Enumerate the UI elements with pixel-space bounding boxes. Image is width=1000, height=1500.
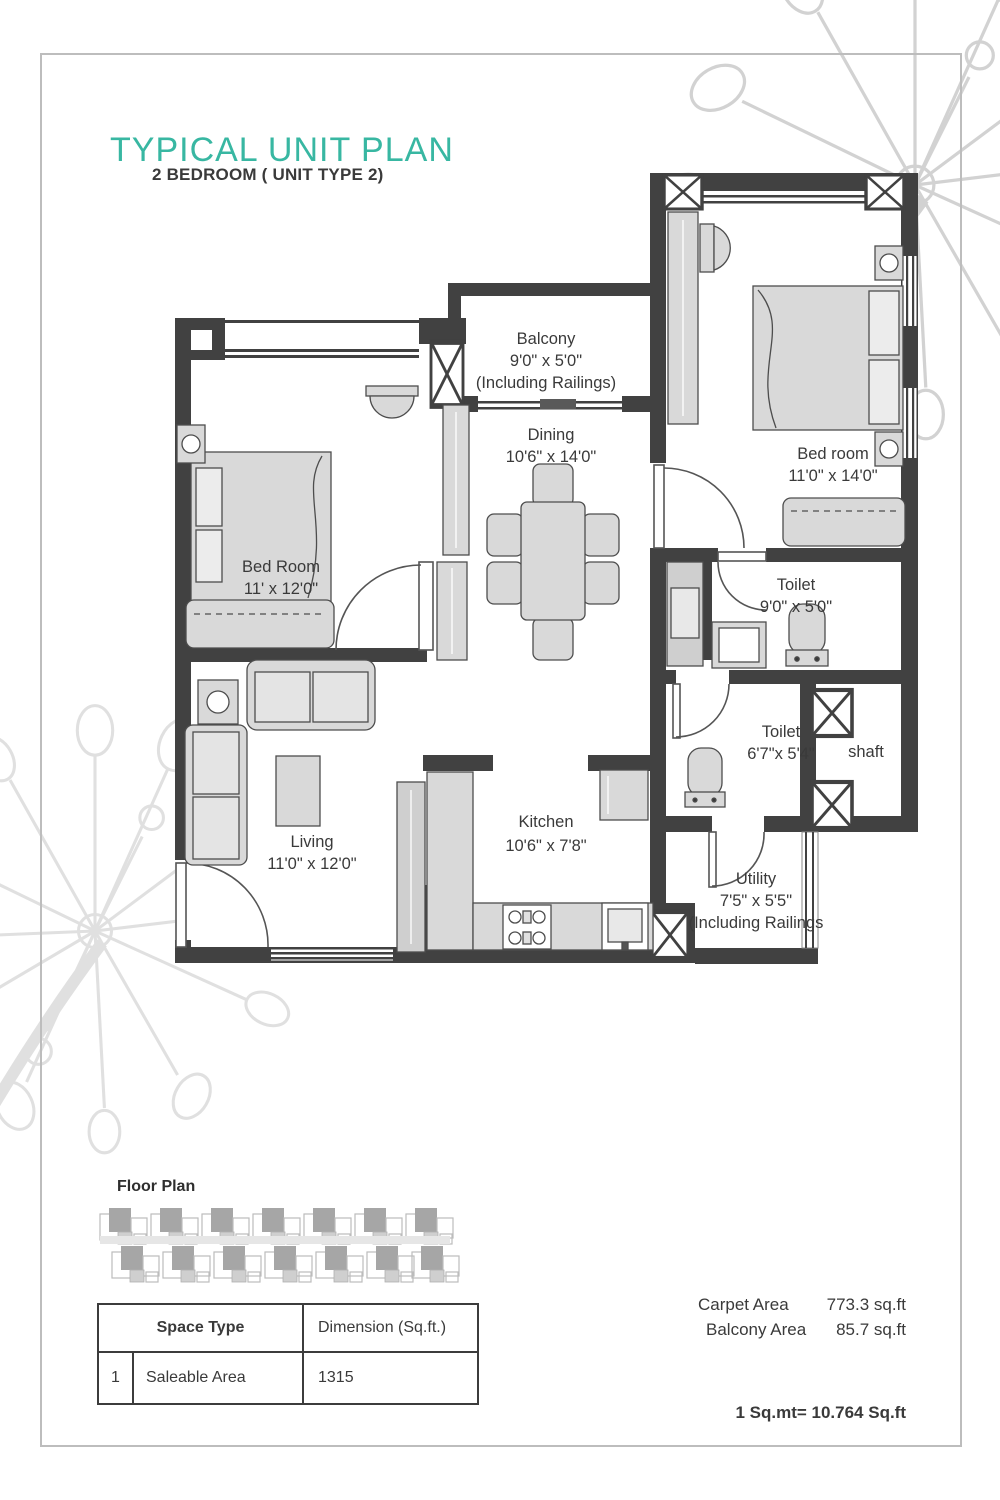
page-subtitle: 2 BEDROOM ( UNIT TYPE 2) [152,165,384,185]
living-label: Living [290,833,333,851]
bedroom-right-label: Bed room [797,445,869,463]
bedroom-left-dim: 11' x 12'0" [244,580,318,598]
area-summary: Carpet Area 773.3 sq.ft Balcony Area 85.… [698,1292,906,1342]
shaft-label: shaft [848,743,884,761]
toilet-mid-label: Toilet [762,723,801,741]
kitchen-label: Kitchen [518,813,573,831]
balcony-label: Balcony [517,330,576,348]
unit-conversion-note: 1 Sq.mt= 10.764 Sq.ft [660,1403,906,1423]
table-cell-dimension: 1315 [303,1352,478,1404]
floor-plan-drawing: Balcony 9'0" x 5'0" (Including Railings)… [0,0,1000,1500]
kitchen-dim: 10'6" x 7'8" [505,837,586,855]
carpet-area-row: Carpet Area 773.3 sq.ft [698,1292,906,1317]
toilet-mid-dim: 6'7"x 5'4" [747,745,815,763]
table-row: 1 Saleable Area 1315 [98,1352,478,1404]
balcony-area-label: Balcony Area [706,1317,806,1342]
carpet-area-value: 773.3 sq.ft [827,1292,906,1317]
utility-note: (Including Railings [689,914,824,932]
table-cell-index: 1 [98,1352,133,1404]
table-header-space-type: Space Type [98,1304,303,1352]
bedroom-left-label: Bed Room [242,558,320,576]
carpet-area-label: Carpet Area [698,1292,789,1317]
balcony-dim: 9'0" x 5'0" [510,352,582,370]
bed-left [186,452,334,648]
bedroom-right-dim: 11'0" x 14'0" [788,467,877,485]
balcony-area-value: 85.7 sq.ft [836,1317,906,1342]
saleable-area-table: Space Type Dimension (Sq.ft.) 1 Saleable… [97,1303,479,1405]
floor-plan-section-label: Floor Plan [117,1178,195,1196]
living-dim: 11'0" x 12'0" [267,855,356,873]
table-cell-space-type: Saleable Area [133,1352,303,1404]
table-header-dimension: Dimension (Sq.ft.) [303,1304,478,1352]
floor-plan-thumbnail [100,1208,459,1282]
toilet-mid-fixtures [685,748,725,807]
utility-dim: 7'5" x 5'5" [720,892,792,910]
balcony-area-row: Balcony Area 85.7 sq.ft [698,1317,906,1342]
balcony-note: (Including Railings) [476,374,616,392]
brochure-page: { "page": { "title": "TYPICAL UNIT PLAN"… [0,0,1000,1500]
dining-label: Dining [528,426,575,444]
toilet-top-dim: 9'0" x 5'0" [760,598,832,616]
toilet-top-label: Toilet [777,576,816,594]
page-title: TYPICAL UNIT PLAN [110,131,454,170]
dining-dim: 10'6" x 14'0" [506,448,597,466]
utility-label: Utility [736,870,777,888]
